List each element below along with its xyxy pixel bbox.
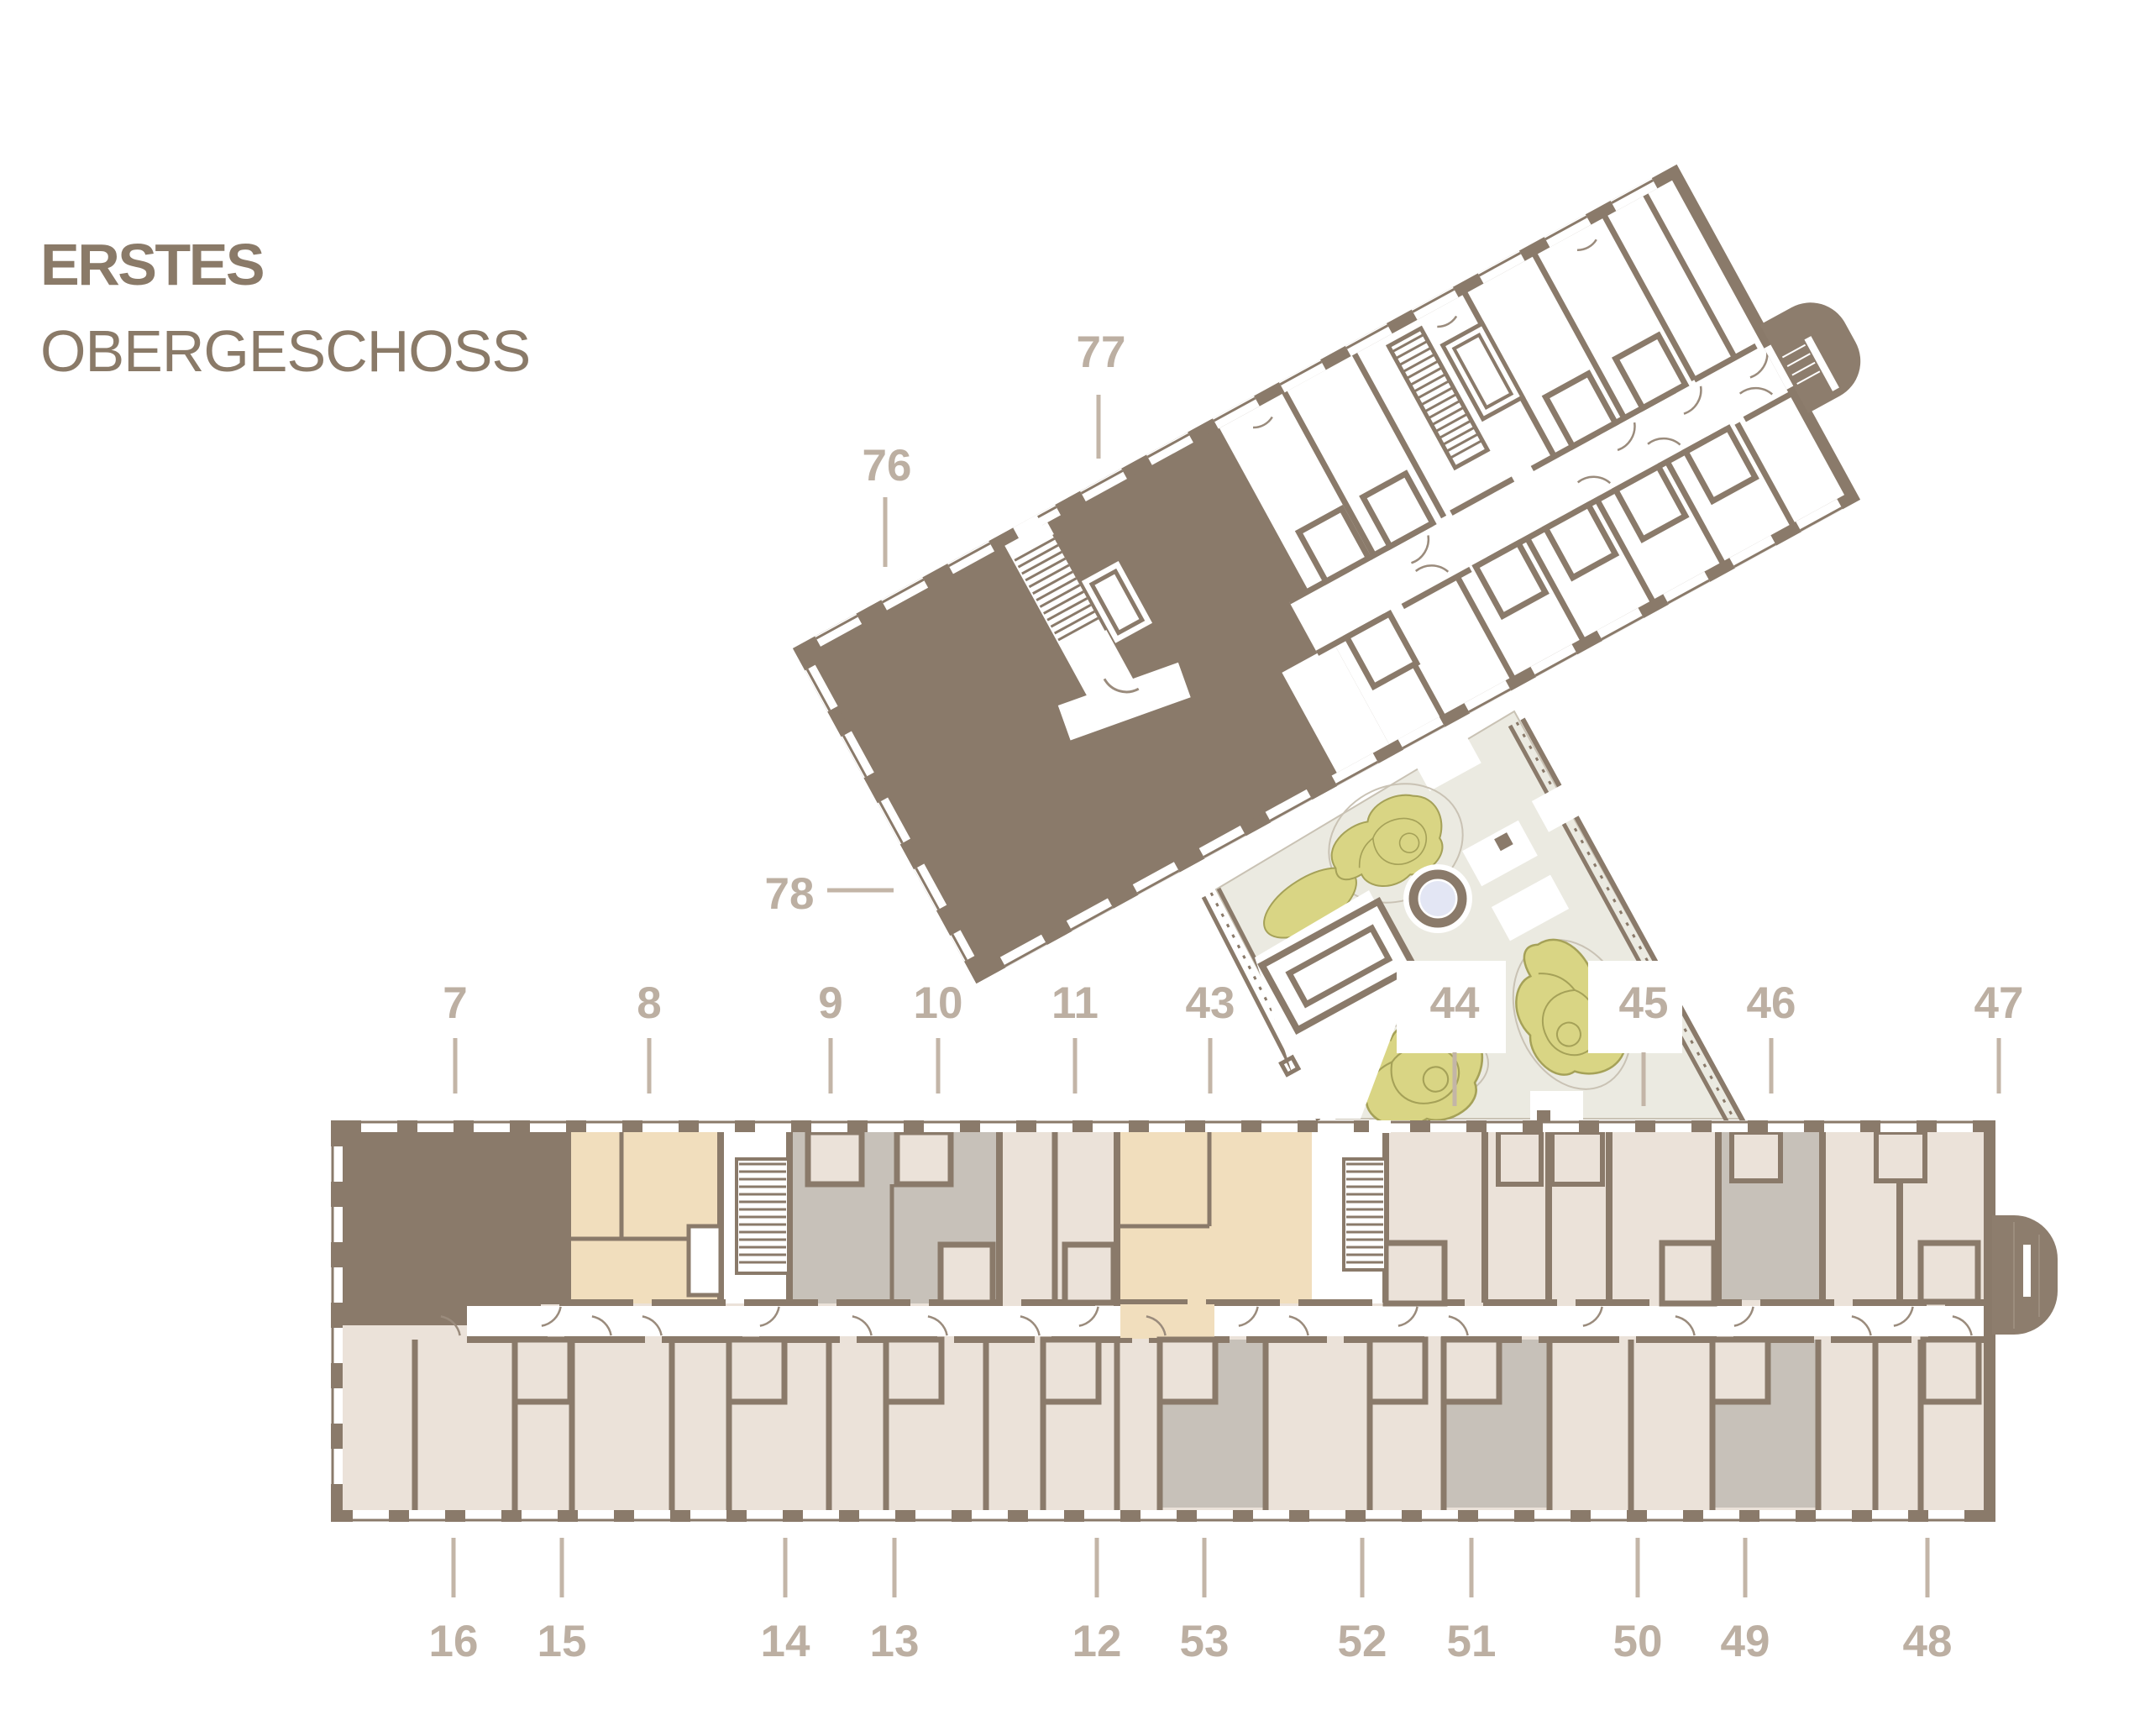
svg-text:15: 15 <box>537 1617 587 1666</box>
svg-text:46: 46 <box>1747 978 1796 1028</box>
svg-text:78: 78 <box>765 869 815 919</box>
svg-text:45: 45 <box>1619 978 1669 1028</box>
svg-text:50: 50 <box>1613 1617 1663 1666</box>
svg-text:43: 43 <box>1186 978 1235 1028</box>
svg-text:49: 49 <box>1721 1617 1770 1666</box>
svg-text:12: 12 <box>1072 1617 1122 1666</box>
svg-text:47: 47 <box>1974 978 2024 1028</box>
svg-text:OBERGESCHOSS: OBERGESCHOSS <box>40 318 530 384</box>
svg-text:9: 9 <box>818 978 842 1028</box>
svg-text:52: 52 <box>1338 1617 1387 1666</box>
svg-text:48: 48 <box>1903 1617 1953 1666</box>
svg-text:11: 11 <box>1051 978 1099 1028</box>
svg-text:10: 10 <box>914 978 963 1028</box>
svg-text:8: 8 <box>637 978 661 1028</box>
svg-text:16: 16 <box>429 1617 479 1666</box>
svg-text:53: 53 <box>1180 1617 1230 1666</box>
svg-text:14: 14 <box>761 1617 810 1666</box>
svg-text:77: 77 <box>1077 328 1126 377</box>
svg-text:7: 7 <box>443 978 467 1028</box>
svg-text:76: 76 <box>863 441 912 490</box>
svg-text:44: 44 <box>1430 978 1480 1028</box>
svg-text:13: 13 <box>870 1617 920 1666</box>
svg-text:ERSTES: ERSTES <box>40 232 263 297</box>
svg-text:51: 51 <box>1447 1617 1497 1666</box>
